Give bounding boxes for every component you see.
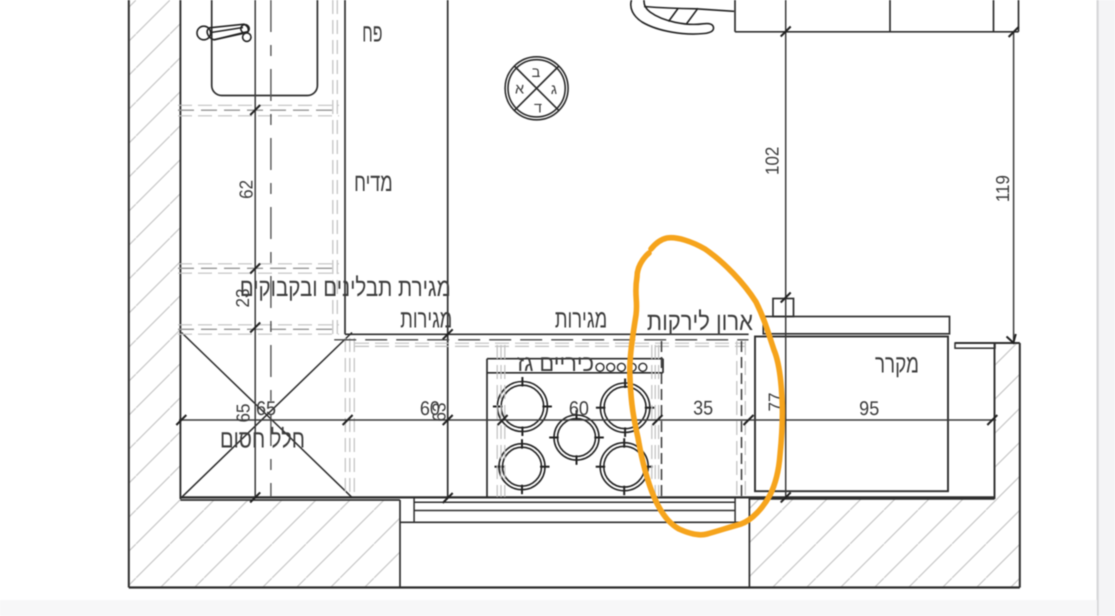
svg-text:63: 63 xyxy=(429,403,450,422)
svg-text:119: 119 xyxy=(993,175,1014,202)
svg-text:פח: פח xyxy=(362,20,382,48)
svg-text:65: 65 xyxy=(256,397,276,419)
svg-text:60: 60 xyxy=(569,397,589,419)
svg-text:מגירות: מגירות xyxy=(555,306,607,334)
svg-text:מגירת תבלינים ובקבוקים: מגירת תבלינים ובקבוקים xyxy=(240,274,451,302)
svg-text:102: 102 xyxy=(762,147,783,175)
svg-text:ד: ד xyxy=(534,101,542,117)
svg-text:35: 35 xyxy=(693,397,713,419)
svg-text:א: א xyxy=(515,82,524,98)
svg-text:65: 65 xyxy=(233,404,254,423)
svg-text:ארון לירקות: ארון לירקות xyxy=(647,308,753,336)
svg-text:מקרר: מקרר xyxy=(875,351,919,379)
svg-text:מגירות: מגירות xyxy=(400,306,452,334)
svg-text:62: 62 xyxy=(236,180,257,199)
svg-text:חלל חסום: חלל חסום xyxy=(220,426,305,454)
svg-text:95: 95 xyxy=(859,397,879,419)
svg-text:כיריים גז: כיריים גז xyxy=(517,351,594,376)
svg-text:ב: ב xyxy=(532,65,541,81)
svg-text:ג: ג xyxy=(551,82,557,98)
svg-text:מדיח: מדיח xyxy=(354,169,393,197)
